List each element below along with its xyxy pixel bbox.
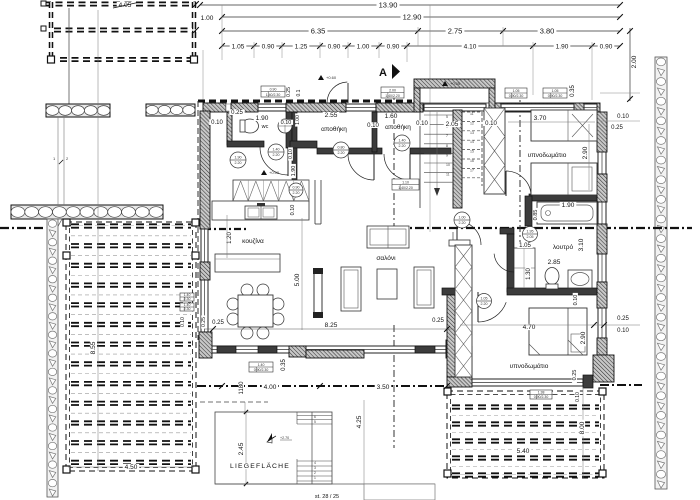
svg-text:1.40/2.30: 1.40/2.30 [266,93,281,97]
svg-text:1.90: 1.90 [556,43,569,50]
svg-text:4.10: 4.10 [464,43,477,50]
svg-text:3.80: 3.80 [540,26,555,35]
svg-text:16: 16 [470,159,474,163]
svg-text:2.05: 2.05 [446,121,459,128]
svg-text:1.10: 1.10 [402,181,409,185]
svg-text:0.1: 0.1 [296,89,302,96]
svg-text:1.40: 1.40 [399,139,406,143]
svg-text:1.90: 1.90 [256,115,269,122]
svg-text:2.30: 2.30 [184,297,191,301]
svg-text:0.25: 0.25 [611,125,623,131]
svg-text:A: A [379,67,387,79]
svg-text:0.90: 0.90 [293,186,300,190]
svg-text:2.20: 2.20 [399,144,406,148]
svg-text:0.25: 0.25 [201,317,207,327]
svg-text:1.00: 1.00 [357,43,370,50]
svg-text:5.00: 5.00 [294,273,301,286]
svg-text:0.90: 0.90 [270,88,277,92]
svg-text:2.75: 2.75 [448,26,463,35]
svg-text:8.25: 8.25 [325,322,338,329]
svg-text:1.90: 1.90 [562,202,575,209]
svg-text:2.20: 2.20 [338,151,345,155]
svg-text:0.10: 0.10 [416,121,428,127]
svg-text:λουτρό: λουτρό [553,243,574,251]
svg-text:1.95: 1.95 [527,230,534,234]
svg-text:+2.70: +2.70 [280,436,289,440]
svg-text:4.50: 4.50 [125,464,138,471]
svg-text:2.30: 2.30 [184,307,191,311]
svg-text:4.00: 4.00 [264,384,277,391]
svg-text:1.40/2.20: 1.40/2.20 [398,186,413,190]
svg-text:2.00: 2.00 [631,55,638,68]
svg-text:5.40: 5.40 [517,448,530,455]
svg-text:αποθήκη: αποθήκη [385,124,411,131]
svg-text:0.25: 0.25 [432,318,444,324]
svg-text:0.10: 0.10 [367,123,379,129]
svg-text:0.90/2.30: 0.90/2.30 [509,94,524,98]
svg-text:1.05: 1.05 [513,89,520,93]
svg-text:0.10: 0.10 [575,392,581,402]
svg-text:0.85: 0.85 [533,210,539,221]
svg-text:1.60: 1.60 [385,113,398,120]
svg-text:st. 28 / 25: st. 28 / 25 [315,494,339,500]
svg-text:1.40/2.20: 1.40/2.20 [385,94,400,98]
svg-text:0.10: 0.10 [485,121,497,127]
svg-text:αποθήκη: αποθήκη [321,126,347,133]
svg-text:0.10: 0.10 [211,120,223,126]
svg-text:4: 4 [314,461,316,465]
svg-text:17: 17 [470,168,474,172]
svg-text:2.90: 2.90 [582,146,589,159]
svg-text:14: 14 [470,140,474,144]
svg-text:0.25: 0.25 [572,370,578,381]
svg-text:υπνοδωμάτιο: υπνοδωμάτιο [528,151,567,159]
svg-text:0.90/2.30: 0.90/2.30 [548,94,563,98]
svg-text:1.00: 1.00 [201,15,214,22]
svg-text:11: 11 [446,173,450,177]
svg-text:0.35: 0.35 [570,85,576,97]
svg-text:0.10: 0.10 [290,205,296,216]
svg-text:7: 7 [446,134,448,138]
svg-text:2.20: 2.20 [481,302,488,306]
svg-text:10: 10 [446,163,450,167]
svg-text:0.10: 0.10 [617,114,629,120]
svg-text:+0.60: +0.60 [326,75,337,80]
svg-text:2.55: 2.55 [325,112,338,119]
svg-text:13.90: 13.90 [379,0,398,9]
svg-text:1180: 1180 [239,381,245,395]
svg-text:1: 1 [314,476,316,480]
svg-text:0.25: 0.25 [212,320,224,326]
svg-text:2.45: 2.45 [238,442,245,455]
svg-text:3.70: 3.70 [534,115,547,122]
svg-text:2: 2 [314,471,316,475]
svg-text:wc: wc [261,124,269,130]
svg-text:2.20: 2.20 [273,153,280,157]
svg-text:8.00: 8.00 [579,421,586,434]
svg-text:1.90: 1.90 [235,156,242,160]
svg-text:κουζίνα: κουζίνα [242,237,264,245]
svg-text:σαλόνι: σαλόνι [376,254,396,262]
svg-text:1.05: 1.05 [481,297,488,301]
svg-text:1.40: 1.40 [258,363,265,367]
svg-text:0.10: 0.10 [573,295,579,306]
svg-text:0.25: 0.25 [617,316,629,322]
svg-text:6: 6 [314,415,316,419]
svg-text:1.25: 1.25 [295,43,308,50]
svg-text:υπνοδωμάτιο: υπνοδωμάτιο [510,362,549,370]
svg-text:0.25: 0.25 [231,110,243,116]
svg-text:3.10: 3.10 [578,238,585,251]
svg-text:3.50: 3.50 [377,384,390,391]
svg-text:6.35: 6.35 [311,26,326,35]
svg-text:1.30: 1.30 [526,268,532,280]
svg-text:+0.00: +0.00 [269,170,280,175]
svg-text:0.10: 0.10 [288,149,294,159]
svg-text:2.90: 2.90 [580,331,587,344]
svg-text:2.20: 2.20 [293,191,300,195]
svg-text:5: 5 [446,115,448,119]
svg-text:9: 9 [446,153,448,157]
svg-text:1.05: 1.05 [519,243,531,249]
svg-text:1.00: 1.00 [295,115,301,125]
svg-text:1.00: 1.00 [459,216,466,220]
svg-text:2.20: 2.20 [235,161,242,165]
svg-text:13: 13 [470,131,474,135]
svg-text:4.25: 4.25 [356,415,363,428]
svg-text:0.10: 0.10 [617,328,629,334]
svg-text:0.90: 0.90 [600,43,613,50]
svg-text:0.10: 0.10 [281,120,292,126]
svg-text:0.90/2.30: 0.90/2.30 [534,395,549,399]
svg-text:2.00: 2.00 [389,89,396,93]
svg-text:1.05: 1.05 [552,89,559,93]
svg-text:5: 5 [314,420,316,424]
svg-text:0.90/2.30: 0.90/2.30 [254,368,269,372]
svg-text:+0.05: +0.05 [450,81,461,86]
svg-text:8: 8 [446,144,448,148]
svg-text:0.90: 0.90 [262,43,275,50]
svg-text:8.55: 8.55 [90,341,97,354]
svg-text:LIEGEFLÄCHE: LIEGEFLÄCHE [230,462,290,470]
svg-text:1.05: 1.05 [232,43,245,50]
svg-text:1.90: 1.90 [291,166,297,177]
svg-text:0.90: 0.90 [387,43,400,50]
svg-text:12: 12 [470,121,474,125]
svg-text:0.90: 0.90 [328,43,341,50]
svg-text:11: 11 [470,112,474,116]
svg-text:2.85: 2.85 [548,259,561,266]
svg-text:0.10: 0.10 [180,317,186,327]
svg-text:15: 15 [470,150,474,154]
svg-text:2.20: 2.20 [459,221,466,225]
svg-text:3: 3 [314,466,316,470]
svg-text:0.35: 0.35 [281,359,287,371]
svg-text:2.05: 2.05 [527,235,534,239]
svg-text:12.90: 12.90 [403,12,422,21]
svg-text:0.80: 0.80 [338,146,345,150]
svg-text:1.20: 1.20 [227,232,233,244]
svg-text:0.25: 0.25 [286,87,292,97]
svg-text:1.40: 1.40 [273,148,280,152]
